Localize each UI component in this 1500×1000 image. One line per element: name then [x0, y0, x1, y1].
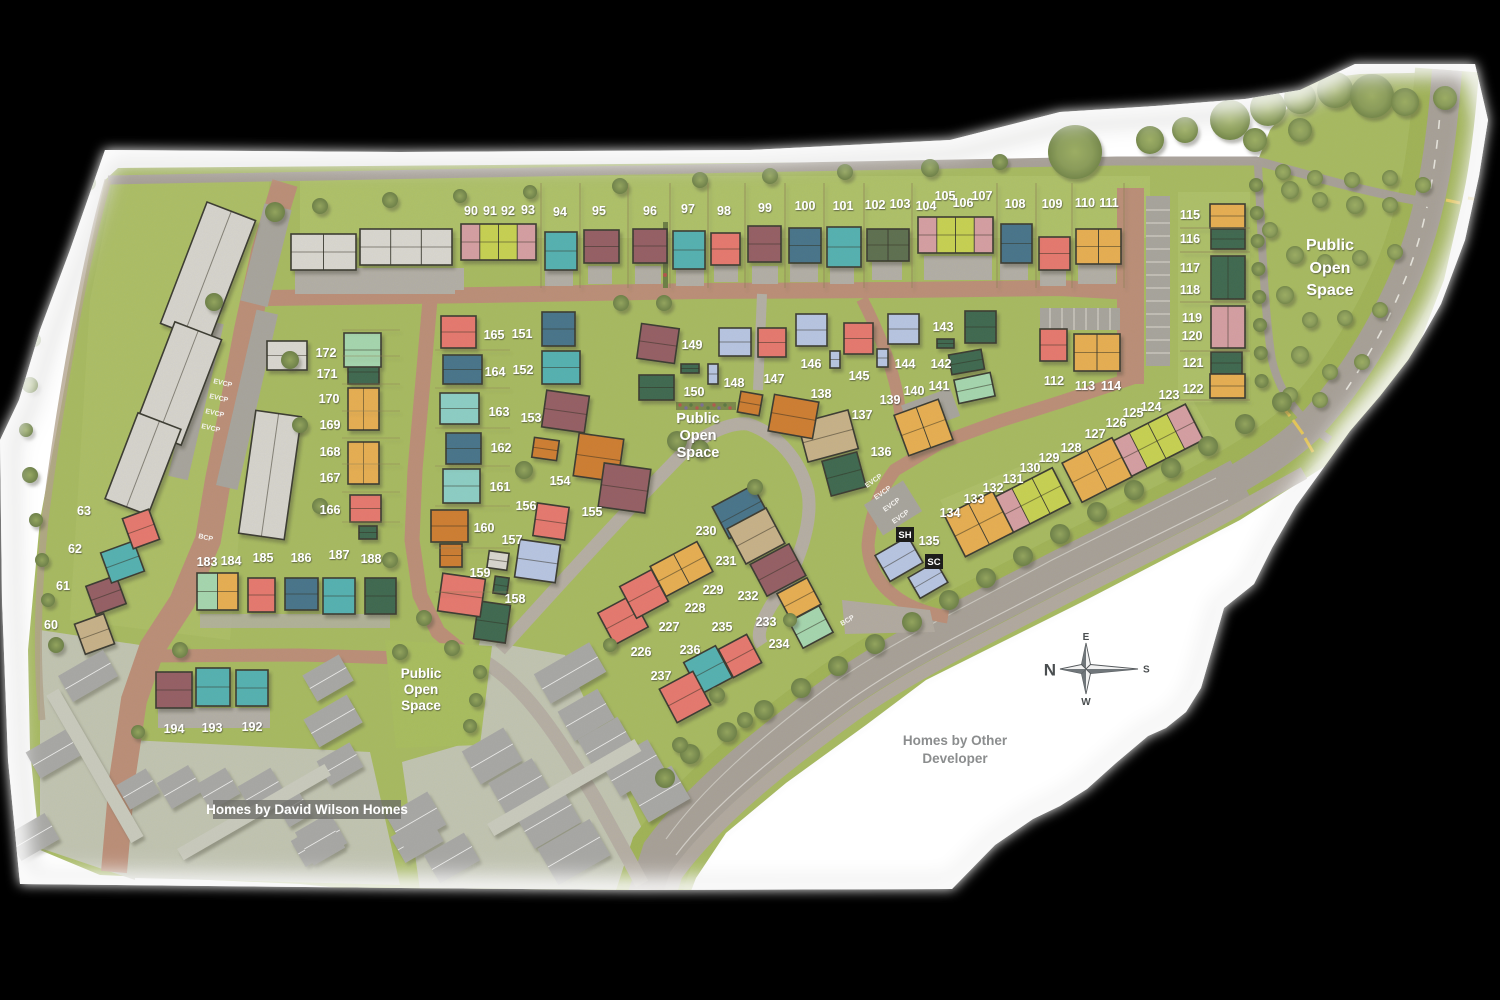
svg-text:135: 135 [919, 534, 940, 548]
svg-text:E: E [1083, 632, 1090, 643]
svg-text:171: 171 [317, 367, 338, 381]
svg-text:234: 234 [769, 637, 790, 651]
svg-text:Homes by Other: Homes by Other [903, 733, 1008, 748]
svg-text:235: 235 [712, 620, 733, 634]
svg-text:152: 152 [513, 363, 534, 377]
svg-text:129: 129 [1039, 451, 1060, 465]
svg-text:106: 106 [953, 196, 974, 210]
svg-text:Space: Space [1306, 282, 1353, 299]
svg-text:131: 131 [1003, 472, 1024, 486]
svg-text:164: 164 [485, 365, 506, 379]
svg-text:172: 172 [316, 346, 337, 360]
svg-text:185: 185 [253, 551, 274, 565]
svg-text:163: 163 [489, 405, 510, 419]
svg-text:228: 228 [685, 601, 706, 615]
svg-text:232: 232 [738, 589, 759, 603]
svg-text:137: 137 [852, 408, 873, 422]
svg-text:90: 90 [464, 204, 478, 218]
svg-text:104: 104 [916, 199, 937, 213]
svg-text:132: 132 [983, 481, 1004, 495]
svg-text:158: 158 [505, 592, 526, 606]
svg-text:145: 145 [849, 369, 870, 383]
svg-text:Open: Open [404, 682, 439, 697]
svg-text:194: 194 [164, 722, 185, 736]
svg-text:97: 97 [681, 202, 695, 216]
svg-text:139: 139 [880, 393, 901, 407]
svg-text:231: 231 [716, 554, 737, 568]
svg-text:95: 95 [592, 204, 606, 218]
svg-text:94: 94 [553, 205, 567, 219]
svg-text:114: 114 [1101, 379, 1121, 393]
svg-text:118: 118 [1180, 283, 1200, 297]
svg-text:62: 62 [68, 542, 82, 556]
svg-text:123: 123 [1159, 388, 1180, 402]
svg-text:W: W [1081, 697, 1091, 708]
svg-text:226: 226 [631, 645, 652, 659]
svg-text:233: 233 [756, 615, 777, 629]
svg-text:99: 99 [758, 201, 772, 215]
svg-text:237: 237 [651, 669, 672, 683]
svg-text:Space: Space [401, 698, 441, 713]
svg-text:61: 61 [56, 579, 70, 593]
svg-text:150: 150 [684, 385, 705, 399]
svg-text:184: 184 [221, 554, 242, 568]
svg-text:167: 167 [320, 471, 341, 485]
svg-text:119: 119 [1182, 311, 1202, 325]
svg-text:147: 147 [764, 372, 785, 386]
svg-text:140: 140 [904, 384, 925, 398]
svg-text:161: 161 [490, 480, 511, 494]
svg-text:154: 154 [550, 474, 571, 488]
svg-text:N: N [1044, 661, 1056, 680]
svg-text:143: 143 [933, 320, 954, 334]
svg-text:S: S [1143, 665, 1150, 676]
svg-text:SC: SC [927, 557, 940, 568]
svg-text:142: 142 [931, 357, 952, 371]
svg-text:63: 63 [77, 504, 91, 518]
svg-text:156: 156 [516, 499, 537, 513]
svg-text:155: 155 [582, 505, 603, 519]
svg-text:115: 115 [1180, 208, 1200, 222]
svg-text:122: 122 [1183, 382, 1204, 396]
svg-text:128: 128 [1061, 441, 1082, 455]
svg-text:Public: Public [1306, 237, 1354, 254]
svg-text:93: 93 [521, 203, 535, 217]
svg-text:117: 117 [1180, 261, 1200, 275]
svg-text:120: 120 [1182, 329, 1203, 343]
svg-text:Space: Space [677, 445, 720, 461]
svg-text:121: 121 [1183, 356, 1204, 370]
svg-text:92: 92 [501, 204, 515, 218]
svg-text:160: 160 [474, 521, 495, 535]
svg-text:236: 236 [680, 643, 701, 657]
svg-text:91: 91 [483, 204, 497, 218]
svg-text:108: 108 [1005, 197, 1026, 211]
svg-text:187: 187 [329, 548, 350, 562]
svg-text:170: 170 [319, 392, 340, 406]
svg-text:100: 100 [795, 199, 816, 213]
svg-text:Public: Public [401, 666, 442, 681]
svg-text:101: 101 [833, 199, 854, 213]
svg-text:112: 112 [1044, 374, 1064, 388]
svg-text:146: 146 [801, 357, 822, 371]
svg-text:124: 124 [1141, 400, 1162, 414]
svg-text:Public: Public [676, 411, 720, 427]
svg-text:138: 138 [811, 387, 832, 401]
svg-text:111: 111 [1099, 196, 1119, 210]
svg-text:193: 193 [202, 721, 223, 735]
svg-text:153: 153 [521, 411, 542, 425]
svg-text:169: 169 [320, 418, 341, 432]
svg-text:Developer: Developer [922, 751, 988, 766]
svg-text:162: 162 [491, 441, 512, 455]
svg-text:148: 148 [724, 376, 745, 390]
svg-text:103: 103 [890, 197, 911, 211]
svg-text:151: 151 [512, 327, 533, 341]
svg-text:186: 186 [291, 551, 312, 565]
svg-text:110: 110 [1075, 196, 1095, 210]
svg-text:165: 165 [484, 328, 505, 342]
svg-text:136: 136 [871, 445, 892, 459]
svg-text:159: 159 [470, 566, 491, 580]
svg-text:230: 230 [696, 524, 717, 538]
svg-text:141: 141 [929, 379, 950, 393]
svg-text:Open: Open [679, 428, 716, 444]
svg-text:229: 229 [703, 583, 724, 597]
svg-text:109: 109 [1042, 197, 1063, 211]
svg-text:SH: SH [898, 530, 911, 541]
svg-text:107: 107 [972, 189, 993, 203]
svg-text:183: 183 [197, 555, 218, 569]
svg-text:102: 102 [865, 198, 886, 212]
svg-text:157: 157 [502, 533, 523, 547]
svg-text:168: 168 [320, 445, 341, 459]
svg-text:166: 166 [320, 503, 341, 517]
svg-text:134: 134 [940, 506, 961, 520]
svg-text:113: 113 [1075, 379, 1095, 393]
svg-text:149: 149 [682, 338, 703, 352]
svg-text:133: 133 [964, 492, 985, 506]
svg-text:144: 144 [895, 357, 916, 371]
svg-text:127: 127 [1085, 427, 1106, 441]
svg-text:188: 188 [361, 552, 382, 566]
svg-text:192: 192 [242, 720, 263, 734]
svg-text:116: 116 [1180, 232, 1200, 246]
svg-text:Open: Open [1310, 260, 1351, 277]
svg-text:Homes by David Wilson Homes: Homes by David Wilson Homes [206, 802, 408, 817]
svg-text:227: 227 [659, 620, 680, 634]
svg-text:96: 96 [643, 204, 657, 218]
svg-text:126: 126 [1106, 416, 1127, 430]
svg-text:98: 98 [717, 204, 731, 218]
svg-text:60: 60 [44, 618, 58, 632]
